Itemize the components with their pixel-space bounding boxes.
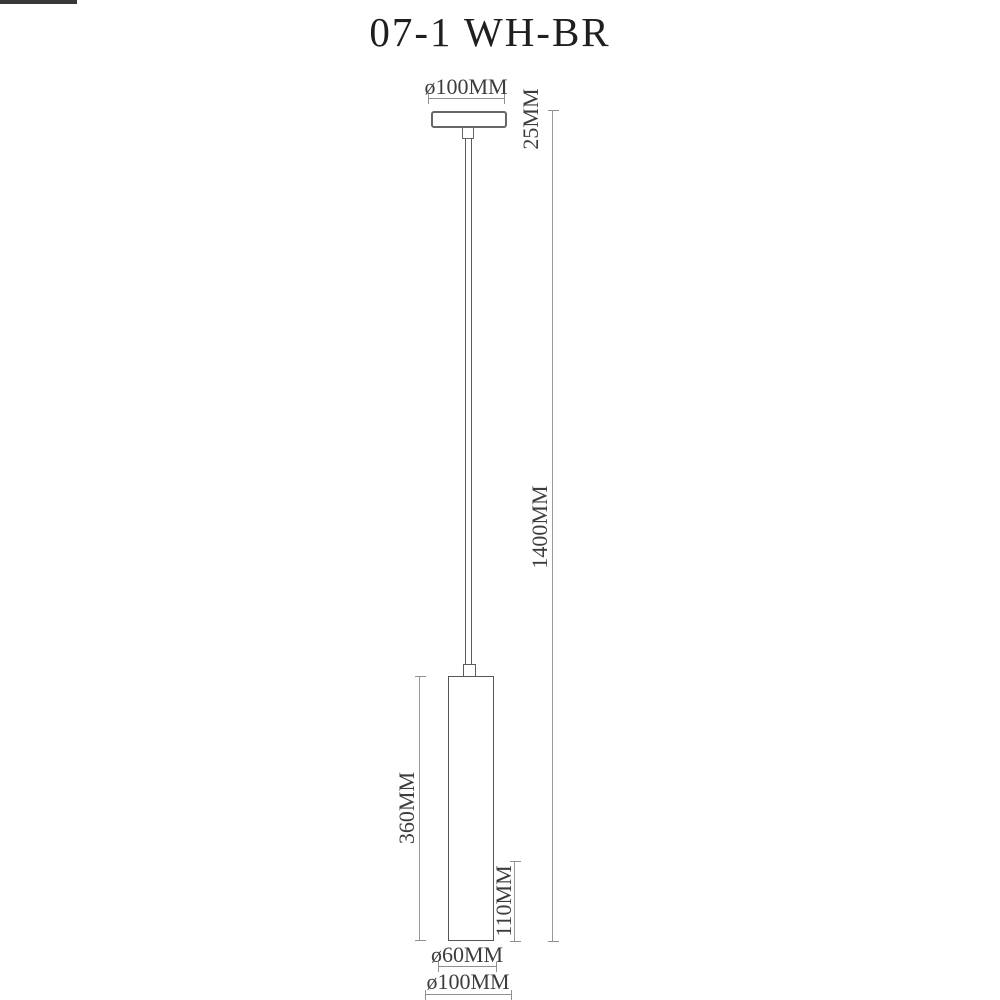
dim-label-body-length: 360MM: [394, 772, 420, 844]
dim-label-canopy-diameter: ø100MM: [424, 74, 507, 100]
dim-label-base-diameter: ø100MM: [426, 969, 509, 995]
body-accent-band: [0, 0, 77, 4]
dim-line-shade-diameter: [438, 966, 497, 967]
dim-label-shade-diameter: ø60MM: [431, 942, 503, 968]
lamp-body-cylinder: [448, 676, 494, 941]
dim-label-canopy-height: 25MM: [518, 88, 544, 149]
dim-line-base-diameter: [425, 994, 512, 995]
dim-label-lower-section: 110MM: [491, 865, 517, 936]
dim-line-canopy-diameter: [428, 98, 505, 99]
drawing-title: 07-1 WH-BR: [369, 8, 610, 56]
ceiling-canopy: [431, 111, 507, 128]
suspension-cord: [465, 138, 472, 666]
dim-label-suspension-length: 1400MM: [527, 485, 553, 568]
technical-drawing: 07-1 WH-BR ø100MM 25MM 1400MM 360MM 110M…: [0, 0, 1000, 1000]
